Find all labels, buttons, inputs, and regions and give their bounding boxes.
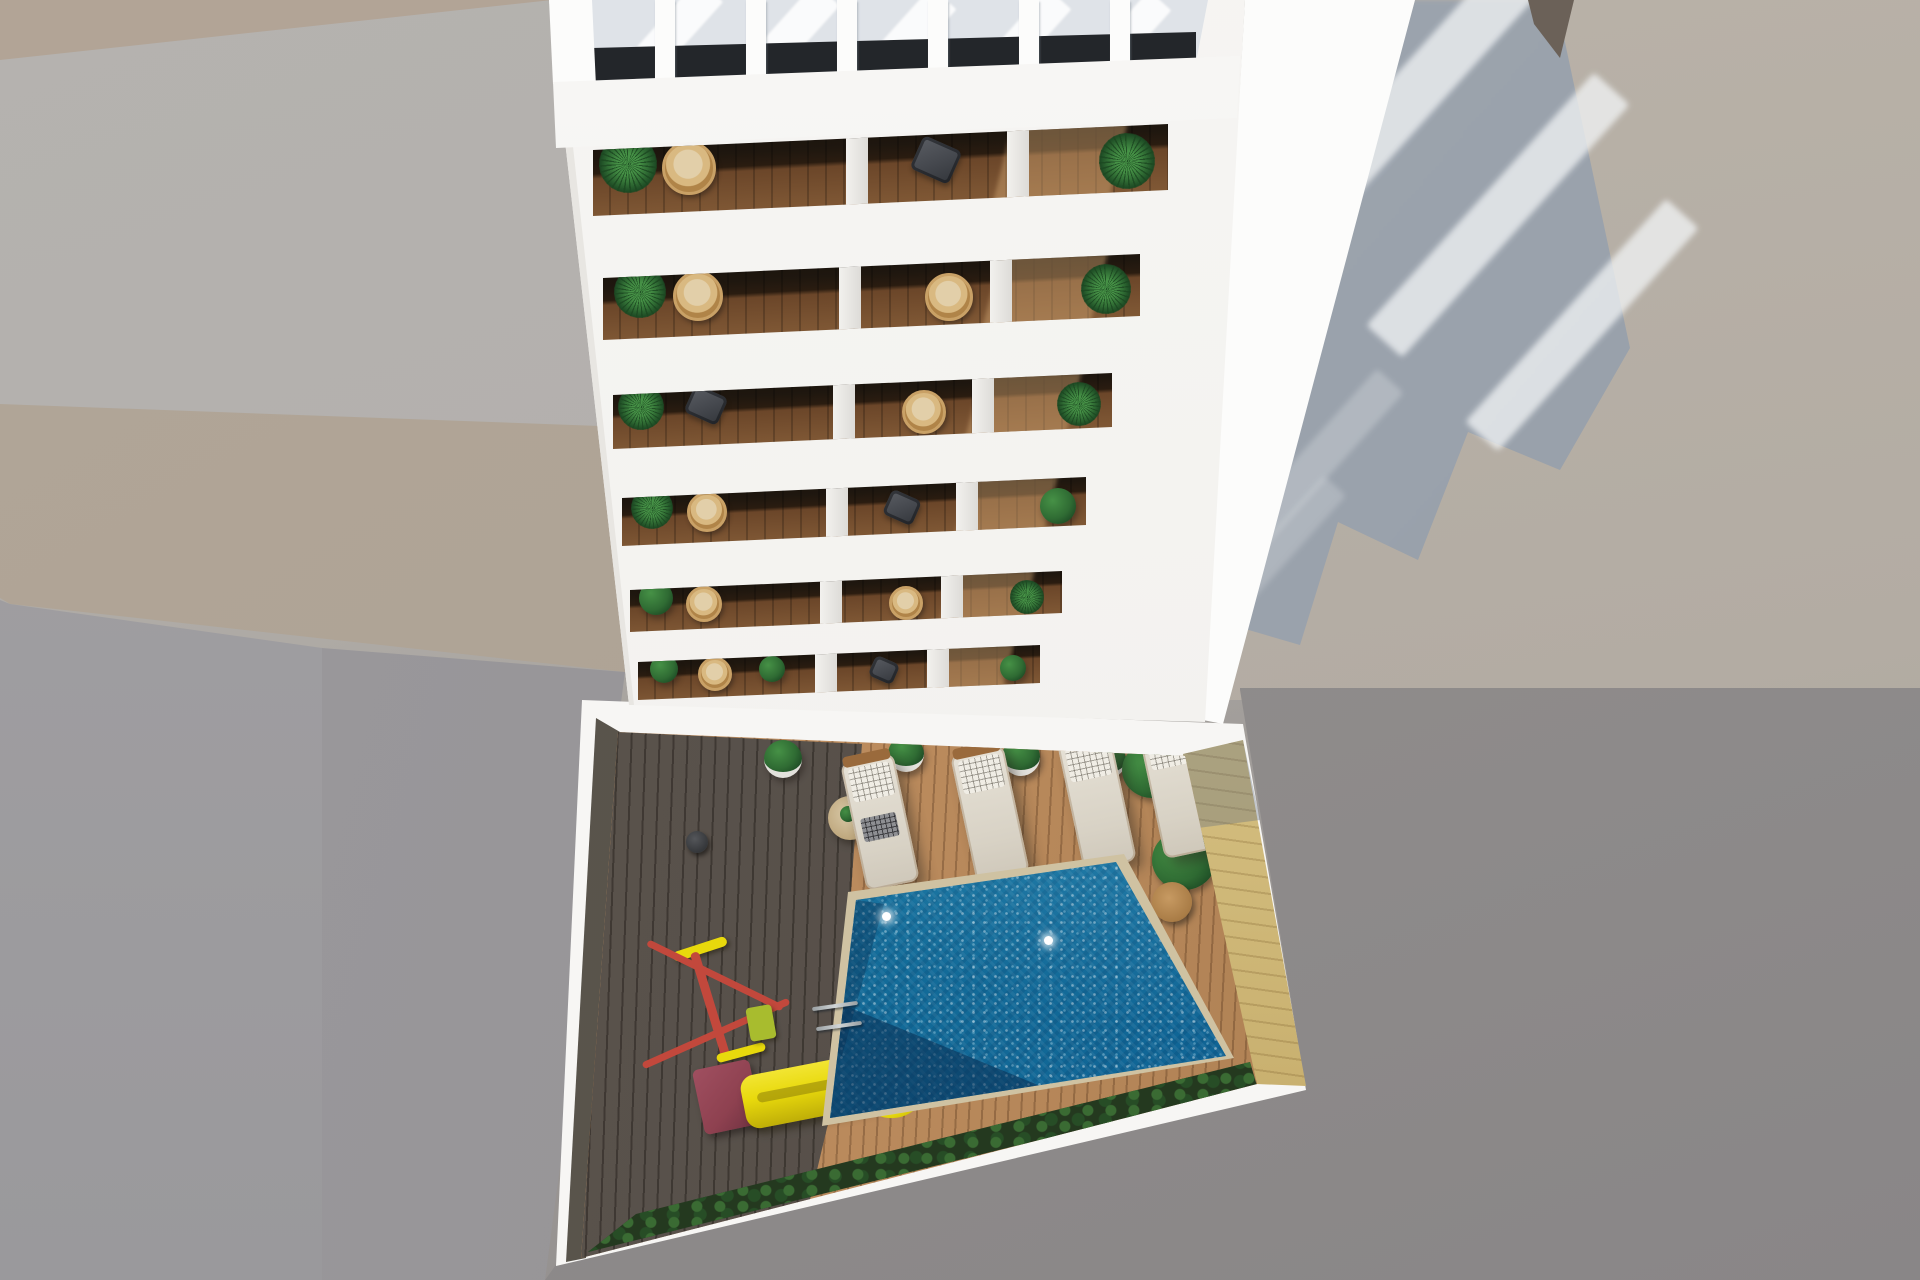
pergola-slat — [1019, 0, 1039, 72]
playground-panel — [745, 1004, 777, 1042]
balcony-plant — [1040, 488, 1076, 524]
wicker-chair — [889, 586, 923, 620]
pergola-slat — [928, 0, 948, 75]
balcony-palm-plant — [1081, 264, 1131, 314]
pergola-slat — [746, 0, 766, 81]
wicker-chair — [662, 141, 716, 195]
pergola-slat — [837, 0, 857, 78]
wicker-chair — [925, 273, 973, 321]
pool-light — [882, 912, 891, 921]
outdoor-shower-head — [686, 831, 708, 853]
wicker-chair — [673, 271, 723, 321]
deck-planter — [764, 740, 802, 778]
wicker-chair — [686, 586, 722, 622]
lounger-pillow — [957, 753, 1005, 795]
wicker-chair — [902, 390, 946, 434]
lounger-pillow — [847, 761, 895, 803]
lounger-cushion — [860, 812, 900, 843]
pergola-slat — [1110, 0, 1130, 69]
pergola-slat — [655, 0, 675, 84]
balcony-palm-plant — [1010, 580, 1044, 614]
wicker-chair — [687, 492, 727, 532]
pool-light — [1044, 936, 1053, 945]
balcony-palm-plant — [1057, 382, 1101, 426]
side-table-wood — [1152, 882, 1192, 922]
terrace-plant — [759, 656, 785, 682]
balcony-palm-plant — [1099, 133, 1155, 189]
aerial-render — [0, 0, 1920, 1280]
terrace-plant — [1000, 655, 1026, 681]
